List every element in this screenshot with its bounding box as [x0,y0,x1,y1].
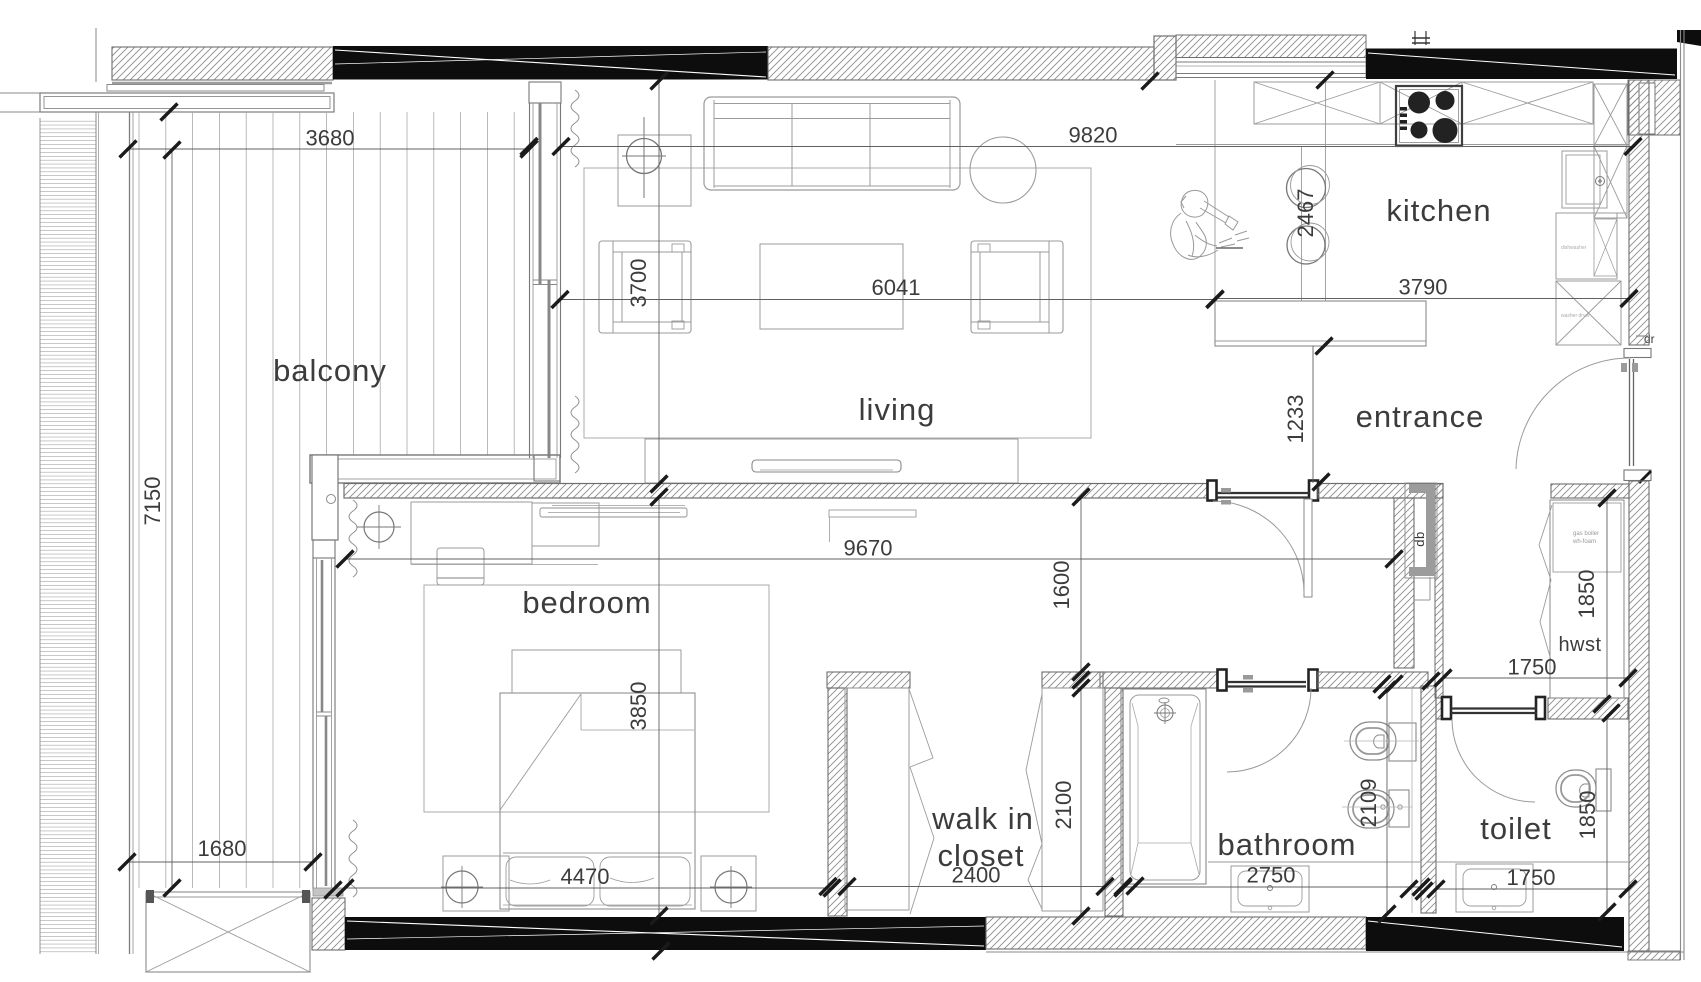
svg-text:1233: 1233 [1283,395,1308,444]
svg-text:1750: 1750 [1508,655,1557,680]
svg-text:7150: 7150 [140,477,165,526]
svg-text:entrance: entrance [1356,399,1485,434]
svg-text:1850: 1850 [1574,570,1599,619]
svg-text:balcony: balcony [273,353,387,388]
svg-text:gas boiler: gas boiler [1573,531,1599,537]
svg-text:wh-foam: wh-foam [1572,539,1596,545]
svg-text:living: living [859,392,936,427]
svg-text:2467: 2467 [1293,189,1318,238]
svg-text:2750: 2750 [1247,863,1296,888]
svg-text:2100: 2100 [1051,781,1076,830]
svg-text:toilet: toilet [1480,811,1551,846]
svg-text:washer dryer: washer dryer [1561,313,1590,319]
svg-text:3790: 3790 [1399,275,1448,300]
svg-text:2109: 2109 [1356,779,1381,828]
svg-text:9820: 9820 [1069,123,1118,148]
svg-text:1750: 1750 [1507,865,1556,890]
svg-text:3680: 3680 [306,126,355,151]
svg-text:walk in: walk in [931,801,1034,836]
svg-text:3700: 3700 [626,259,651,308]
svg-text:1850: 1850 [1575,791,1600,840]
svg-text:bathroom: bathroom [1218,827,1357,862]
svg-text:hwst: hwst [1558,634,1601,656]
svg-text:bedroom: bedroom [522,585,651,620]
svg-text:6041: 6041 [872,275,921,300]
svg-text:2400: 2400 [952,863,1001,888]
svg-text:4470: 4470 [561,864,610,889]
svg-text:dishwasher: dishwasher [1561,245,1587,251]
svg-text:9670: 9670 [844,536,893,561]
svg-text:kitchen: kitchen [1386,193,1491,228]
svg-text:db: db [1412,531,1427,546]
svg-text:1600: 1600 [1049,561,1074,610]
svg-text:3850: 3850 [626,682,651,731]
svg-text:1680: 1680 [198,836,247,861]
